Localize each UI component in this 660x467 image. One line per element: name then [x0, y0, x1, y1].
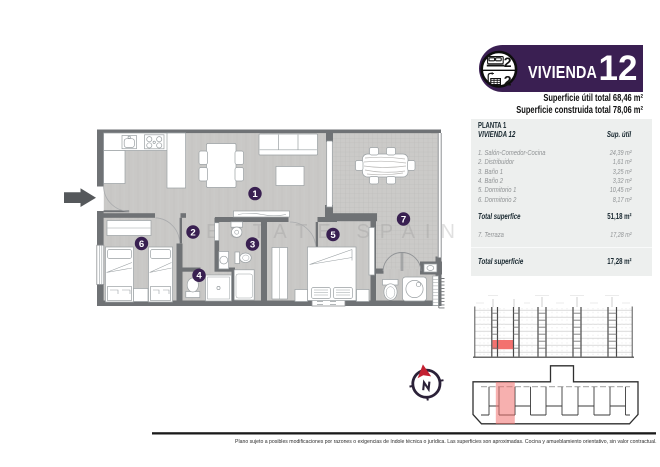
svg-text:1: 1 — [252, 189, 258, 200]
svg-text:5: 5 — [330, 230, 336, 241]
svg-text:2: 2 — [504, 54, 512, 70]
svg-text:3: 3 — [250, 239, 255, 250]
svg-text:2: 2 — [190, 227, 195, 238]
svg-text:6: 6 — [139, 239, 144, 250]
svg-text:4: 4 — [196, 271, 202, 282]
svg-text:7: 7 — [401, 214, 406, 225]
svg-text:2: 2 — [504, 72, 512, 88]
